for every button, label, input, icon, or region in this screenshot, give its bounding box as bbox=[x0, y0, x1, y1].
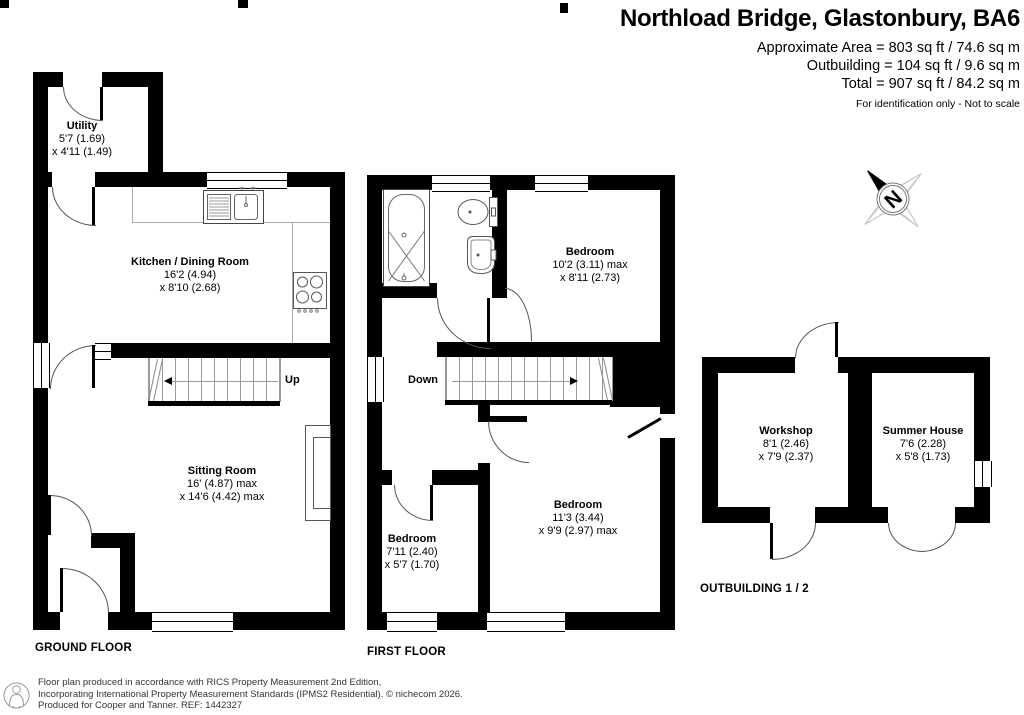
door-leaf bbox=[430, 485, 433, 520]
room-name: Sitting Room bbox=[180, 465, 265, 478]
window bbox=[95, 343, 111, 360]
door-leaf bbox=[835, 322, 838, 357]
room-label-workshop: Workshop 8'1 (2.46) x 7'9 (2.37) bbox=[759, 425, 814, 464]
stair-arrow-icon bbox=[164, 377, 172, 385]
page-mark bbox=[238, 0, 248, 8]
room-dim: 16' (4.87) max bbox=[180, 478, 265, 491]
wall bbox=[702, 357, 718, 523]
door-leaf bbox=[92, 187, 95, 225]
window bbox=[432, 175, 490, 192]
wall bbox=[330, 172, 345, 630]
room-label-bedroom3: Bedroom 11'3 (3.44) x 9'9 (2.97) max bbox=[539, 499, 618, 538]
stairs-down-label: Down bbox=[392, 374, 438, 386]
wall bbox=[478, 463, 490, 612]
window bbox=[152, 612, 233, 632]
bedroom-door-arc bbox=[394, 485, 433, 521]
door-arc bbox=[50, 495, 92, 536]
french-door-arc bbox=[888, 523, 923, 552]
room-dim: 7'11 (2.40) bbox=[385, 546, 440, 559]
room-name: Utility bbox=[52, 120, 112, 133]
first-floor-label: FIRST FLOOR bbox=[367, 646, 446, 658]
room-name: Summer House bbox=[883, 425, 964, 438]
room-label-utility: Utility 5'7 (1.69) x 4'11 (1.49) bbox=[52, 120, 112, 159]
hob-icon bbox=[292, 271, 328, 313]
room-dim: x 7'9 (2.37) bbox=[759, 451, 814, 464]
counter-line bbox=[132, 187, 133, 223]
door-leaf bbox=[92, 345, 95, 388]
wall bbox=[848, 357, 872, 523]
room-dim: 10'2 (3.11) max bbox=[552, 259, 627, 272]
window bbox=[33, 343, 50, 388]
door-arc bbox=[52, 187, 96, 226]
page-mark bbox=[0, 0, 9, 8]
room-label-bedroom2: Bedroom 7'11 (2.40) x 5'7 (1.70) bbox=[385, 533, 440, 572]
staircase bbox=[445, 357, 613, 401]
wall bbox=[432, 470, 478, 485]
room-name: Bedroom bbox=[552, 246, 627, 259]
room-dim: 16'2 (4.94) bbox=[131, 269, 249, 282]
footer-line: Produced for Cooper and Tanner. REF: 144… bbox=[38, 700, 463, 712]
room-dim: 5'7 (1.69) bbox=[52, 133, 112, 146]
window bbox=[367, 357, 384, 402]
footer-text: Floor plan produced in accordance with R… bbox=[38, 677, 463, 712]
staircase-edge bbox=[148, 401, 280, 406]
wall bbox=[102, 72, 163, 87]
wall bbox=[33, 612, 60, 630]
wall bbox=[478, 405, 490, 422]
disclaimer: For identification only - Not to scale bbox=[620, 98, 1020, 110]
wall bbox=[955, 507, 990, 523]
window bbox=[387, 612, 437, 632]
room-dim: x 4'11 (1.49) bbox=[52, 146, 112, 159]
room-dim: x 8'10 (2.68) bbox=[131, 282, 249, 295]
room-dim: x 5'8 (1.73) bbox=[883, 451, 964, 464]
bedroom-door-arc bbox=[505, 288, 532, 341]
room-dim: x 5'7 (1.70) bbox=[385, 559, 440, 572]
bedroom-door-arc bbox=[488, 421, 529, 463]
wall bbox=[565, 612, 675, 630]
room-dim: x 9'9 (2.97) max bbox=[539, 525, 618, 538]
wall bbox=[437, 612, 487, 630]
approx-area-line: Approximate Area = 803 sq ft / 74.6 sq m bbox=[620, 39, 1020, 57]
staircase-edge bbox=[445, 400, 612, 405]
wall bbox=[287, 172, 330, 187]
wall bbox=[367, 612, 387, 630]
stair-direction-line bbox=[452, 381, 570, 382]
room-dim: x 8'11 (2.73) bbox=[552, 272, 627, 285]
ground-floor-label: GROUND FLOOR bbox=[35, 642, 132, 654]
door-leaf bbox=[627, 417, 661, 439]
room-label-bedroom1: Bedroom 10'2 (3.11) max x 8'11 (2.73) bbox=[552, 246, 627, 285]
door-leaf bbox=[48, 495, 51, 535]
door-arc bbox=[50, 345, 96, 389]
door-arc bbox=[63, 87, 103, 121]
page-mark bbox=[560, 3, 568, 13]
door-leaf bbox=[100, 87, 103, 120]
room-name: Workshop bbox=[759, 425, 814, 438]
wall bbox=[974, 357, 990, 461]
wall bbox=[33, 388, 48, 612]
wall bbox=[120, 548, 135, 612]
wall bbox=[33, 72, 48, 343]
wall bbox=[33, 172, 52, 187]
bay-feature-inner bbox=[313, 437, 331, 509]
room-dim: x 14'6 (4.42) max bbox=[180, 491, 265, 504]
wall bbox=[148, 87, 163, 172]
room-label-summer-house: Summer House 7'6 (2.28) x 5'8 (1.73) bbox=[883, 425, 964, 464]
wall bbox=[110, 343, 330, 358]
window bbox=[487, 612, 565, 632]
window bbox=[535, 175, 588, 192]
header: Northload Bridge, Glastonbury, BA6 Appro… bbox=[620, 5, 1020, 110]
outbuilding-label: OUTBUILDING 1 / 2 bbox=[700, 583, 809, 595]
front-door-arc bbox=[62, 568, 109, 613]
wall bbox=[367, 175, 432, 190]
compass-icon: N bbox=[851, 157, 935, 241]
door-opening bbox=[660, 414, 675, 438]
room-label-sitting-room: Sitting Room 16' (4.87) max x 14'6 (4.42… bbox=[180, 465, 265, 504]
bathtub-icon bbox=[383, 189, 430, 287]
toilet-icon bbox=[456, 195, 500, 229]
stairs-up-label: Up bbox=[285, 374, 300, 386]
kitchen-sink-icon bbox=[203, 186, 265, 226]
outbuilding-area-line: Outbuilding = 104 sq ft / 9.6 sq m bbox=[620, 57, 1020, 75]
room-dim: 8'1 (2.46) bbox=[759, 438, 814, 451]
total-area-line: Total = 907 sq ft / 84.2 sq m bbox=[620, 75, 1020, 93]
door-leaf bbox=[487, 298, 490, 348]
stair-direction-line bbox=[172, 381, 278, 382]
wall bbox=[610, 357, 675, 407]
window bbox=[974, 461, 992, 487]
room-dim: 11'3 (3.44) bbox=[539, 512, 618, 525]
wall bbox=[490, 175, 535, 190]
room-name: Kitchen / Dining Room bbox=[131, 256, 249, 269]
stair-arrow-icon bbox=[570, 377, 578, 385]
room-dim: 7'6 (2.28) bbox=[883, 438, 964, 451]
footer-line: Incorporating International Property Mea… bbox=[38, 689, 463, 701]
room-name: Bedroom bbox=[539, 499, 618, 512]
wall bbox=[367, 402, 382, 630]
wall bbox=[702, 507, 770, 523]
wall bbox=[367, 175, 382, 357]
front-door-leaf bbox=[60, 568, 63, 612]
workshop-door-arc bbox=[772, 523, 816, 560]
wall bbox=[382, 470, 392, 485]
room-label-kitchen: Kitchen / Dining Room 16'2 (4.94) x 8'10… bbox=[131, 256, 249, 295]
footer-line: Floor plan produced in accordance with R… bbox=[38, 677, 463, 689]
workshop-door-arc bbox=[795, 322, 839, 358]
person-scale-icon bbox=[3, 680, 31, 712]
room-name: Bedroom bbox=[385, 533, 440, 546]
wall bbox=[91, 533, 135, 548]
wall bbox=[233, 612, 345, 630]
wall bbox=[108, 612, 152, 630]
french-door-arc bbox=[921, 523, 956, 552]
page-title: Northload Bridge, Glastonbury, BA6 bbox=[620, 5, 1020, 33]
wall bbox=[95, 172, 207, 187]
door-leaf bbox=[770, 523, 773, 559]
basin-icon bbox=[464, 233, 498, 277]
